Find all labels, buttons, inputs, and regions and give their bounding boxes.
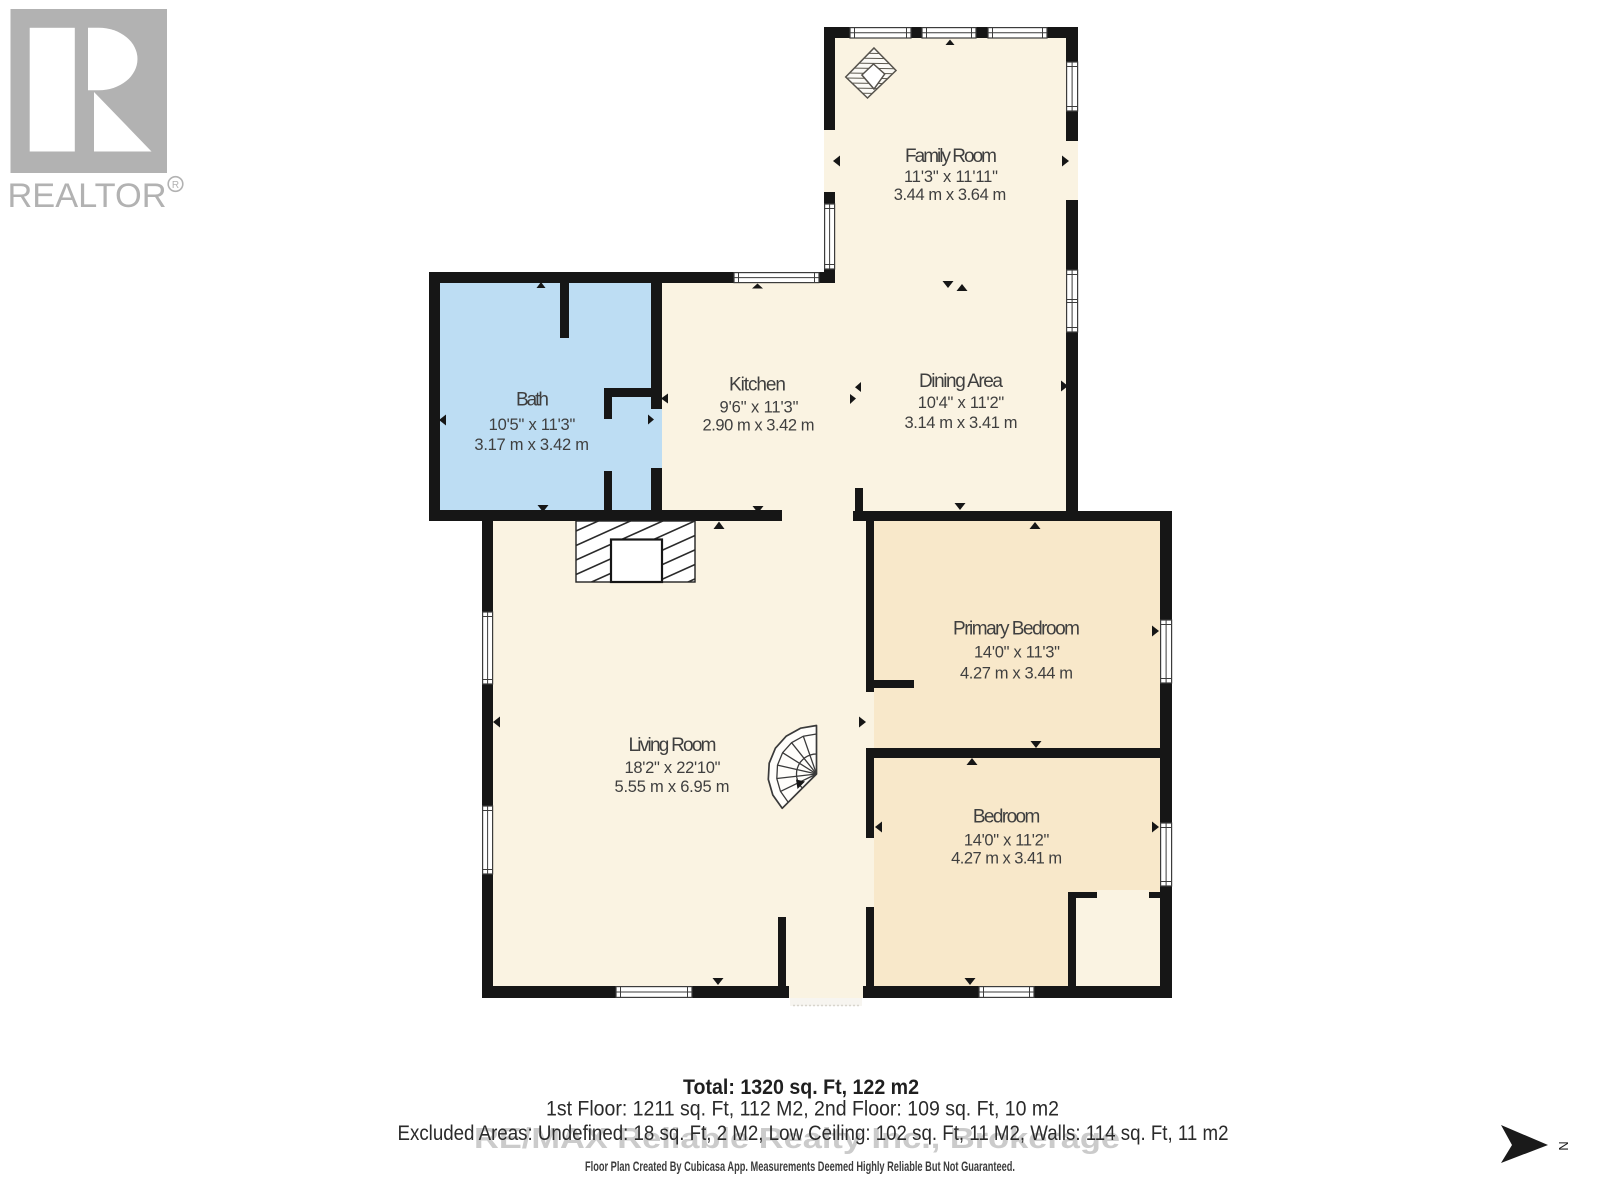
svg-text:Excluded Areas: Undefined: 18: Excluded Areas: Undefined: 18 sq. Ft, 2 … (398, 1122, 1229, 1145)
svg-text:Dining Area: Dining Area (919, 371, 1003, 392)
svg-text:Primary Bedroom: Primary Bedroom (953, 619, 1080, 640)
svg-text:Total: 1320 sq. Ft, 122 m2: Total: 1320 sq. Ft, 122 m2 (683, 1075, 919, 1099)
svg-text:Living Room: Living Room (629, 735, 717, 756)
svg-text:3.17 m x 3.42 m: 3.17 m x 3.42 m (474, 436, 589, 454)
svg-text:3.44 m x 3.64 m: 3.44 m x 3.64 m (894, 186, 1007, 204)
svg-text:14'0" x 11'3": 14'0" x 11'3" (974, 644, 1060, 662)
svg-text:14'0" x 11'2": 14'0" x 11'2" (964, 832, 1050, 850)
svg-text:Floor Plan Created By Cubicasa: Floor Plan Created By Cubicasa App. Meas… (585, 1159, 1015, 1174)
svg-text:18'2" x 22'10": 18'2" x 22'10" (625, 759, 721, 777)
svg-text:5.55 m x 6.95 m: 5.55 m x 6.95 m (615, 778, 730, 796)
svg-text:R: R (172, 180, 179, 191)
svg-text:9'6" x 11'3": 9'6" x 11'3" (720, 399, 799, 417)
svg-text:4.27 m x 3.44 m: 4.27 m x 3.44 m (960, 665, 1073, 683)
svg-text:Bath: Bath (516, 390, 549, 411)
svg-text:REALTOR: REALTOR (8, 177, 167, 215)
svg-text:3.14 m x 3.41 m: 3.14 m x 3.41 m (905, 414, 1018, 432)
svg-text:4.27 m x 3.41 m: 4.27 m x 3.41 m (951, 850, 1062, 868)
svg-text:Bedroom: Bedroom (973, 807, 1041, 828)
svg-text:2.90 m x 3.42 m: 2.90 m x 3.42 m (703, 417, 815, 435)
svg-text:10'4" x 11'2": 10'4" x 11'2" (918, 394, 1005, 412)
svg-text:11'3" x 11'11": 11'3" x 11'11" (904, 168, 998, 186)
svg-text:Kitchen: Kitchen (729, 375, 786, 396)
svg-text:1st Floor: 1211 sq. Ft, 112 M2: 1st Floor: 1211 sq. Ft, 112 M2, 2nd Floo… (546, 1098, 1059, 1121)
svg-text:10'5" x 11'3": 10'5" x 11'3" (489, 416, 576, 434)
svg-text:N: N (1556, 1141, 1571, 1150)
svg-text:Family Room: Family Room (905, 146, 997, 167)
